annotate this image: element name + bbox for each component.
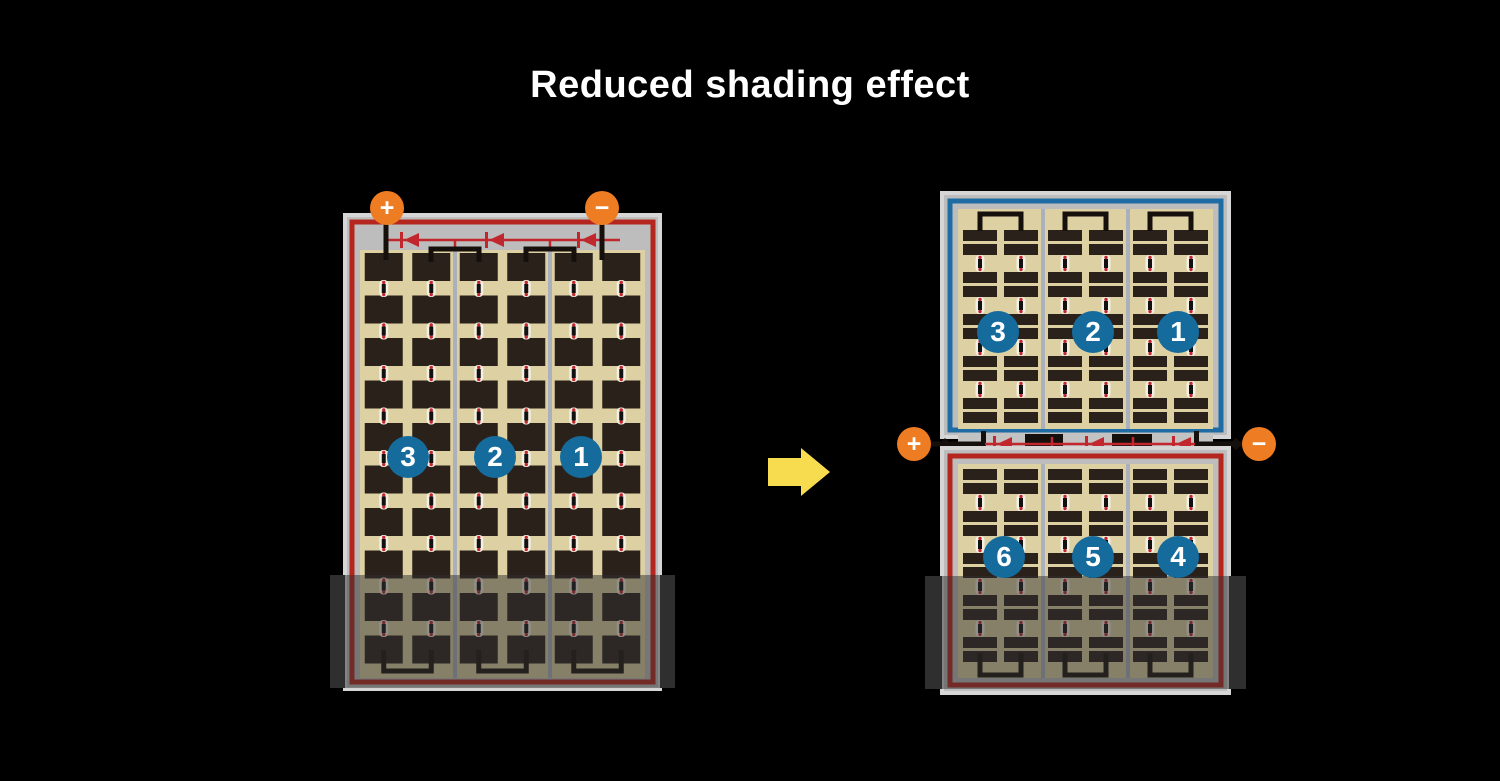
connector-dot xyxy=(1189,310,1192,313)
connector-dot xyxy=(430,463,433,466)
connector-bar xyxy=(1104,385,1108,394)
solar-half-cell xyxy=(1133,286,1167,297)
connector-dot xyxy=(1063,256,1066,259)
connector-dot xyxy=(430,293,433,296)
connector-bar xyxy=(572,539,576,548)
connector-bar xyxy=(572,497,576,506)
lead-node xyxy=(1230,438,1242,450)
connector-dot xyxy=(382,420,385,423)
bypass-diode-icon xyxy=(485,232,488,248)
solar-half-cell xyxy=(1089,398,1123,409)
solar-cell xyxy=(460,338,498,366)
connector-dot xyxy=(1019,495,1022,498)
connector-bar xyxy=(1148,385,1152,394)
solar-half-cell xyxy=(1004,398,1038,409)
connector-bar xyxy=(1019,343,1023,352)
connector-dot xyxy=(978,352,981,355)
solar-half-cell xyxy=(1133,272,1167,283)
connector-dot xyxy=(1019,352,1022,355)
connector-bar xyxy=(477,497,481,506)
solar-half-cell xyxy=(1004,483,1038,494)
connector-dot xyxy=(572,281,575,284)
connector-bar xyxy=(477,369,481,378)
connector-dot xyxy=(1189,256,1192,259)
connector-dot xyxy=(1189,352,1192,355)
solar-half-cell xyxy=(1174,525,1208,536)
connector-dot xyxy=(430,378,433,381)
connector-bar xyxy=(619,454,623,463)
connector-dot xyxy=(1148,268,1151,271)
connector-dot xyxy=(620,378,623,381)
connector-dot xyxy=(1189,268,1192,271)
connector-bar xyxy=(978,385,982,394)
solar-half-cell xyxy=(1174,286,1208,297)
connector-dot xyxy=(382,505,385,508)
connector-dot xyxy=(978,256,981,259)
solar-cell xyxy=(602,508,640,536)
connector-bar xyxy=(1063,498,1067,507)
connector-bar xyxy=(619,284,623,293)
connector-dot xyxy=(620,536,623,539)
solar-cell xyxy=(507,551,545,579)
solar-half-cell xyxy=(1089,244,1123,255)
string-badge: 1 xyxy=(1157,311,1199,353)
transition-arrow-icon xyxy=(765,445,835,500)
connector-dot xyxy=(1019,268,1022,271)
connector-dot xyxy=(382,536,385,539)
connector-dot xyxy=(1019,537,1022,540)
solar-half-cell xyxy=(1133,469,1167,480)
connector-dot xyxy=(1019,507,1022,510)
connector-dot xyxy=(572,335,575,338)
connector-dot xyxy=(1063,268,1066,271)
solar-cell xyxy=(555,551,593,579)
connector-bar xyxy=(978,259,982,268)
connector-bar xyxy=(619,412,623,421)
connector-dot xyxy=(382,548,385,551)
connector-bar xyxy=(382,412,386,421)
connector-dot xyxy=(477,293,480,296)
connector-dot xyxy=(978,298,981,301)
solar-half-cell xyxy=(1048,525,1082,536)
connector-bar xyxy=(524,327,528,336)
right-arrow-icon xyxy=(768,448,830,496)
solar-half-cell xyxy=(1133,356,1167,367)
connector-bar xyxy=(619,539,623,548)
connector-dot xyxy=(1148,352,1151,355)
connector-dot xyxy=(477,536,480,539)
solar-half-cell xyxy=(1174,230,1208,241)
connector-bar xyxy=(1148,498,1152,507)
connector-dot xyxy=(382,323,385,326)
solar-cell xyxy=(507,338,545,366)
connector-dot xyxy=(525,536,528,539)
solar-half-cell xyxy=(963,483,997,494)
connector-bar xyxy=(524,497,528,506)
bypass-diode-icon xyxy=(577,232,580,248)
connector-dot xyxy=(382,493,385,496)
shade-overlay-edge xyxy=(330,575,345,688)
connector-dot xyxy=(1063,394,1066,397)
diagram-title: Reduced shading effect xyxy=(0,64,1500,107)
connector-dot xyxy=(1189,298,1192,301)
solar-half-cell xyxy=(1048,272,1082,283)
connector-bar xyxy=(382,327,386,336)
connector-dot xyxy=(1019,310,1022,313)
connector-dot xyxy=(382,463,385,466)
shade-overlay-edge xyxy=(660,575,675,688)
negative-terminal-icon: − xyxy=(585,191,619,225)
connector-bar xyxy=(1148,301,1152,310)
connector-bar xyxy=(1019,259,1023,268)
connector-dot xyxy=(430,323,433,326)
connector-dot xyxy=(525,281,528,284)
solar-half-cell xyxy=(1048,244,1082,255)
positive-terminal-icon: + xyxy=(897,427,931,461)
solar-cell xyxy=(412,508,450,536)
connector-dot xyxy=(1189,394,1192,397)
solar-cell xyxy=(602,296,640,324)
solar-half-cell xyxy=(963,244,997,255)
connector-dot xyxy=(978,549,981,552)
connector-dot xyxy=(1148,382,1151,385)
connector-dot xyxy=(430,366,433,369)
connector-dot xyxy=(525,335,528,338)
connector-bar xyxy=(572,284,576,293)
connector-dot xyxy=(430,548,433,551)
connector-dot xyxy=(620,505,623,508)
string-badge: 6 xyxy=(983,536,1025,578)
connector-bar xyxy=(429,454,433,463)
connector-dot xyxy=(620,366,623,369)
solar-half-cell xyxy=(963,230,997,241)
connector-dot xyxy=(477,420,480,423)
connector-dot xyxy=(572,323,575,326)
connector-dot xyxy=(477,323,480,326)
connector-dot xyxy=(1019,394,1022,397)
connector-dot xyxy=(572,408,575,411)
connector-dot xyxy=(1148,495,1151,498)
solar-cell xyxy=(602,466,640,494)
group-separator xyxy=(1126,209,1130,429)
solar-cell xyxy=(602,338,640,366)
connector-dot xyxy=(1104,298,1107,301)
solar-half-cell xyxy=(1004,525,1038,536)
solar-half-cell xyxy=(1174,272,1208,283)
connector-dot xyxy=(477,378,480,381)
shade-overlay-edge xyxy=(1229,576,1246,689)
connector-dot xyxy=(1019,340,1022,343)
connector-bar xyxy=(382,539,386,548)
connector-dot xyxy=(477,408,480,411)
connector-bar xyxy=(1019,301,1023,310)
solar-half-cell xyxy=(1004,412,1038,423)
solar-half-cell xyxy=(1133,398,1167,409)
string-badge: 4 xyxy=(1157,536,1199,578)
string-badge: 3 xyxy=(977,311,1019,353)
connector-bar xyxy=(978,540,982,549)
solar-cell xyxy=(555,508,593,536)
connector-bar xyxy=(1148,259,1152,268)
diagram-stage: Reduced shading effect + − 3 2 1 + − 3 2… xyxy=(0,0,1500,781)
solar-cell xyxy=(602,423,640,451)
connector-bar xyxy=(1189,301,1193,310)
solar-half-cell xyxy=(1048,370,1082,381)
solar-half-cell xyxy=(963,469,997,480)
solar-half-cell xyxy=(1089,356,1123,367)
connector-dot xyxy=(430,335,433,338)
solar-half-cell xyxy=(1133,370,1167,381)
solar-cell xyxy=(412,381,450,409)
connector-dot xyxy=(1063,507,1066,510)
connector-bar xyxy=(572,327,576,336)
connector-bar xyxy=(1148,540,1152,549)
solar-half-cell xyxy=(1089,286,1123,297)
connector-bar xyxy=(619,369,623,378)
connector-dot xyxy=(620,281,623,284)
solar-half-cell xyxy=(1048,412,1082,423)
solar-cell xyxy=(602,253,640,281)
connector-dot xyxy=(382,408,385,411)
connector-dot xyxy=(620,463,623,466)
solar-cell xyxy=(460,381,498,409)
connector-bar xyxy=(524,412,528,421)
solar-cell xyxy=(460,296,498,324)
connector-dot xyxy=(1104,495,1107,498)
solar-cell xyxy=(555,338,593,366)
string-badge: 5 xyxy=(1072,536,1114,578)
solar-half-cell xyxy=(1133,230,1167,241)
connector-bar xyxy=(524,369,528,378)
solar-cell xyxy=(365,508,403,536)
solar-cell xyxy=(365,338,403,366)
solar-cell xyxy=(412,551,450,579)
connector-dot xyxy=(525,463,528,466)
connector-bar xyxy=(429,412,433,421)
solar-cell xyxy=(412,338,450,366)
solar-half-cell xyxy=(963,412,997,423)
connector-dot xyxy=(1063,352,1066,355)
solar-half-cell xyxy=(1174,244,1208,255)
connector-dot xyxy=(525,408,528,411)
connector-dot xyxy=(620,451,623,454)
solar-half-cell xyxy=(1089,272,1123,283)
connector-bar xyxy=(382,497,386,506)
connector-dot xyxy=(430,451,433,454)
connector-dot xyxy=(1104,394,1107,397)
group-separator xyxy=(1041,209,1045,429)
connector-dot xyxy=(382,335,385,338)
solar-cell xyxy=(555,381,593,409)
connector-dot xyxy=(620,548,623,551)
solar-half-cell xyxy=(1174,511,1208,522)
solar-half-cell xyxy=(1048,398,1082,409)
connector-dot xyxy=(978,382,981,385)
connector-bar xyxy=(477,539,481,548)
connector-dot xyxy=(1019,382,1022,385)
shade-overlay-edge xyxy=(925,576,942,689)
solar-half-cell xyxy=(963,525,997,536)
solar-half-cell xyxy=(1048,511,1082,522)
solar-half-cell xyxy=(1174,370,1208,381)
solar-half-cell xyxy=(1004,244,1038,255)
connector-bar xyxy=(1019,385,1023,394)
connector-dot xyxy=(1019,256,1022,259)
solar-half-cell xyxy=(963,286,997,297)
connector-dot xyxy=(572,293,575,296)
connector-dot xyxy=(382,281,385,284)
connector-dot xyxy=(1063,382,1066,385)
connector-dot xyxy=(620,293,623,296)
split-panel-graphic xyxy=(895,185,1285,705)
connector-bar xyxy=(572,412,576,421)
solar-half-cell xyxy=(1048,483,1082,494)
connector-bar xyxy=(477,327,481,336)
solar-half-cell xyxy=(963,272,997,283)
connector-dot xyxy=(1148,507,1151,510)
connector-dot xyxy=(525,420,528,423)
solar-half-cell xyxy=(1004,272,1038,283)
connector-dot xyxy=(1189,507,1192,510)
solar-cell xyxy=(507,296,545,324)
positive-terminal-icon: + xyxy=(370,191,404,225)
connector-dot xyxy=(477,366,480,369)
connector-dot xyxy=(430,536,433,539)
solar-half-cell xyxy=(963,398,997,409)
connector-dot xyxy=(430,408,433,411)
connector-bar xyxy=(477,284,481,293)
connector-dot xyxy=(525,378,528,381)
solar-cell xyxy=(365,551,403,579)
solar-half-cell xyxy=(1004,370,1038,381)
connector-bar xyxy=(524,284,528,293)
string-badge: 2 xyxy=(1072,311,1114,353)
connector-bar xyxy=(978,498,982,507)
connector-bar xyxy=(1063,301,1067,310)
solar-half-cell xyxy=(963,511,997,522)
connector-dot xyxy=(525,451,528,454)
connector-bar xyxy=(477,412,481,421)
connector-dot xyxy=(382,293,385,296)
connector-dot xyxy=(525,323,528,326)
string-badge: 3 xyxy=(387,436,429,478)
connector-dot xyxy=(620,323,623,326)
solar-half-cell xyxy=(1089,230,1123,241)
connector-dot xyxy=(382,451,385,454)
connector-dot xyxy=(430,493,433,496)
solar-cell xyxy=(412,296,450,324)
connector-dot xyxy=(1148,537,1151,540)
connector-bar xyxy=(429,369,433,378)
solar-half-cell xyxy=(1133,525,1167,536)
solar-half-cell xyxy=(1133,244,1167,255)
connector-bar xyxy=(429,539,433,548)
connector-bar xyxy=(1148,343,1152,352)
connector-dot xyxy=(1148,298,1151,301)
connector-bar xyxy=(429,327,433,336)
connector-bar xyxy=(382,369,386,378)
connector-dot xyxy=(1148,256,1151,259)
connector-dot xyxy=(572,378,575,381)
connector-bar xyxy=(1063,259,1067,268)
solar-half-cell xyxy=(1048,356,1082,367)
connector-bar xyxy=(1063,540,1067,549)
solar-half-cell xyxy=(1174,469,1208,480)
connector-dot xyxy=(1063,340,1066,343)
solar-half-cell xyxy=(1133,412,1167,423)
solar-cell xyxy=(602,551,640,579)
solar-half-cell xyxy=(1089,469,1123,480)
connector-bar xyxy=(429,284,433,293)
solar-half-cell xyxy=(1174,356,1208,367)
connector-dot xyxy=(572,493,575,496)
connector-dot xyxy=(978,268,981,271)
connector-dot xyxy=(620,420,623,423)
solar-half-cell xyxy=(1089,483,1123,494)
solar-half-cell xyxy=(1089,412,1123,423)
string-badge: 2 xyxy=(474,436,516,478)
solar-half-cell xyxy=(1004,230,1038,241)
connector-dot xyxy=(572,366,575,369)
connector-bar xyxy=(619,327,623,336)
solar-half-cell xyxy=(1048,286,1082,297)
connector-dot xyxy=(572,536,575,539)
connector-dot xyxy=(978,507,981,510)
connector-dot xyxy=(572,548,575,551)
connector-bar xyxy=(1019,498,1023,507)
connector-dot xyxy=(525,505,528,508)
connector-dot xyxy=(1104,352,1107,355)
connector-dot xyxy=(620,408,623,411)
connector-bar xyxy=(1104,259,1108,268)
connector-bar xyxy=(1063,385,1067,394)
solar-half-cell xyxy=(963,370,997,381)
connector-dot xyxy=(1063,495,1066,498)
shade-overlay xyxy=(942,576,1229,689)
connector-dot xyxy=(1104,268,1107,271)
solar-half-cell xyxy=(1089,370,1123,381)
connector-bar xyxy=(429,497,433,506)
connector-dot xyxy=(1063,310,1066,313)
connector-bar xyxy=(1063,343,1067,352)
solar-half-cell xyxy=(963,356,997,367)
solar-half-cell xyxy=(1004,356,1038,367)
connector-dot xyxy=(978,537,981,540)
connector-dot xyxy=(1104,382,1107,385)
connector-bar xyxy=(619,497,623,506)
connector-dot xyxy=(978,310,981,313)
solar-half-cell xyxy=(1048,230,1082,241)
connector-dot xyxy=(572,420,575,423)
connector-dot xyxy=(477,335,480,338)
solar-half-cell xyxy=(1174,398,1208,409)
connector-dot xyxy=(525,548,528,551)
solar-cell xyxy=(507,466,545,494)
connector-dot xyxy=(1148,549,1151,552)
connector-bar xyxy=(382,284,386,293)
solar-cell xyxy=(460,508,498,536)
solar-cell xyxy=(602,381,640,409)
connector-dot xyxy=(525,493,528,496)
connector-dot xyxy=(1104,256,1107,259)
solar-cell xyxy=(507,508,545,536)
solar-cell xyxy=(507,381,545,409)
connector-dot xyxy=(572,505,575,508)
connector-dot xyxy=(1019,298,1022,301)
shade-overlay xyxy=(345,575,660,688)
solar-half-cell xyxy=(1004,511,1038,522)
solar-half-cell xyxy=(1133,511,1167,522)
